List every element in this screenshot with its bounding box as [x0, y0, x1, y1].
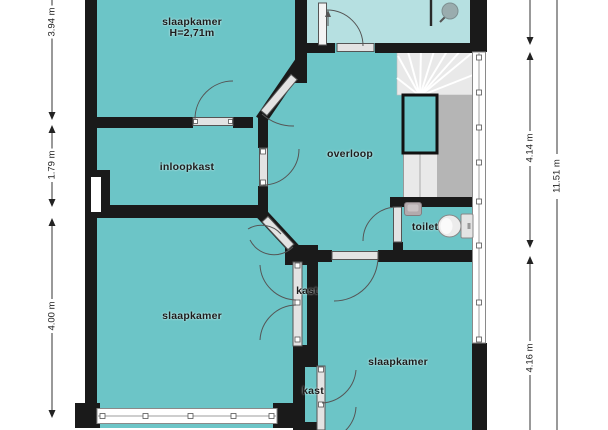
dim-left-bottom: 4.00 m	[47, 299, 58, 332]
room-label-landing: overloop	[327, 148, 373, 160]
room-height-bedroom-top-left: H=2,71m	[170, 27, 215, 39]
dim-right-total: 11.51 m	[552, 157, 563, 195]
dim-right-bottom: 4.16 m	[525, 341, 536, 374]
stair-upper-flight	[437, 95, 473, 197]
staircase	[397, 48, 473, 197]
room-label-toilet: toilet	[412, 221, 438, 233]
floorplan: slaapkamer H=2,71m inloopkast overloop t…	[0, 0, 608, 430]
door-bathroom-open-leaf	[319, 3, 327, 45]
door-toilet	[394, 207, 402, 242]
stairwell-opening	[403, 95, 437, 153]
bottom-window	[97, 409, 277, 424]
bedroom-bottom-right-floor	[307, 250, 478, 430]
chimney-flue	[91, 177, 101, 212]
dim-left-middle: 1.79 m	[47, 148, 58, 181]
room-label-bedroom-bottom-left: slaapkamer	[162, 310, 222, 322]
door-bedroom-bottom-right	[332, 252, 378, 260]
dim-right-top: 4.14 m	[525, 131, 536, 164]
room-label-walk-in-closet: inloopkast	[160, 161, 215, 173]
right-window	[473, 52, 486, 343]
dim-left-top: 3.94 m	[47, 5, 58, 38]
room-label-closet-upper: kast	[296, 285, 318, 297]
wc-icon	[438, 214, 473, 238]
door-bathroom-closed	[337, 44, 374, 52]
room-label-bedroom-bottom-right: slaapkamer	[368, 356, 428, 368]
door-bedroom-top-left	[193, 118, 233, 126]
floorplan-drawing	[0, 0, 608, 430]
door-closet-lower	[317, 366, 325, 430]
room-label-closet-lower: kast	[302, 385, 324, 397]
washbasin-icon	[405, 203, 422, 216]
